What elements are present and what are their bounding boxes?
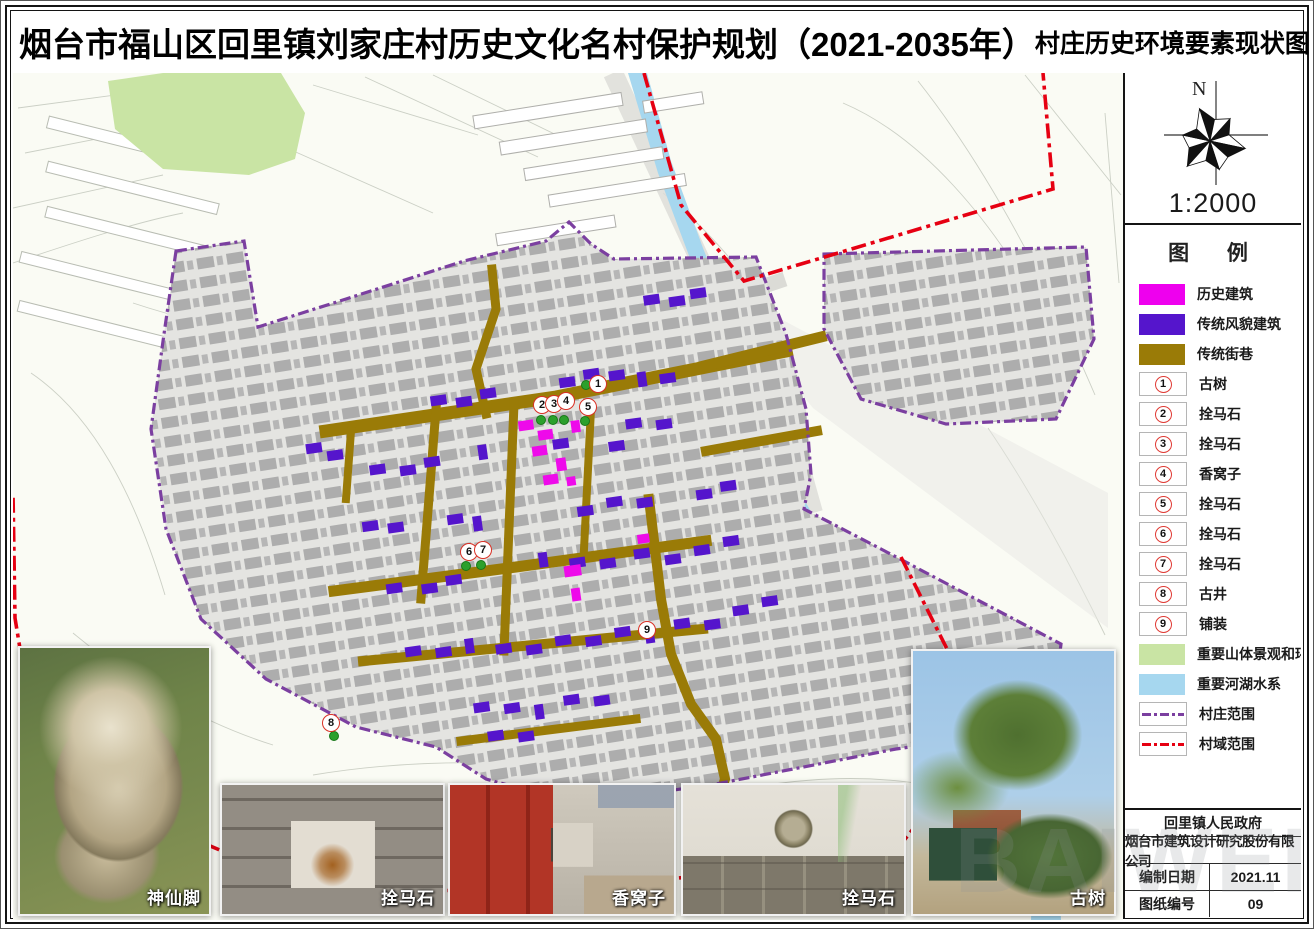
legend-item-traditional-street: 传统街巷 bbox=[1139, 339, 1301, 369]
photo-immortal-foot: 神仙脚 bbox=[18, 646, 211, 916]
village-boundary-sample bbox=[1142, 712, 1184, 716]
heritage-point-dot bbox=[329, 731, 339, 741]
legend-item-domain-boundary: 村域范围 bbox=[1139, 729, 1301, 759]
scale-text: 1:2000 bbox=[1125, 188, 1301, 219]
photo-incense-niche: 香窝子 bbox=[448, 783, 676, 916]
map-marker-9: 9 bbox=[638, 621, 656, 639]
map-marker-7: 7 bbox=[474, 541, 492, 559]
legend-num-7: 7 bbox=[1155, 556, 1172, 573]
heritage-point-dot bbox=[548, 415, 558, 425]
heritage-point-dot bbox=[536, 415, 546, 425]
sheet-number-row: 图纸编号 09 bbox=[1125, 891, 1301, 917]
legend-item-traditional-building: 传统风貌建筑 bbox=[1139, 309, 1301, 339]
legend-num-5: 5 bbox=[1155, 496, 1172, 513]
legend-item-8: 8 古井 bbox=[1139, 579, 1301, 609]
sheet-number-label: 图纸编号 bbox=[1125, 891, 1210, 917]
photo-caption: 拴马石 bbox=[381, 884, 435, 909]
heritage-point-dot bbox=[461, 561, 471, 571]
legend-item-water: 重要河湖水系 bbox=[1139, 669, 1301, 699]
header: 烟台市福山区回里镇刘家庄村历史文化名村保护规划（2021-2035年） 村庄历史… bbox=[13, 11, 1301, 75]
map-marker-5: 5 bbox=[579, 398, 597, 416]
legend-item-village-boundary: 村庄范围 bbox=[1139, 699, 1301, 729]
photo-caption: 拴马石 bbox=[842, 884, 896, 909]
legend-item-mountain: 重要山体景观和环境 bbox=[1139, 639, 1301, 669]
legend-item-historical: 历史建筑 bbox=[1139, 279, 1301, 309]
mountain-swatch bbox=[1139, 644, 1185, 665]
date-label: 编制日期 bbox=[1125, 864, 1210, 890]
photo-ancient-tree: 古树 bbox=[911, 649, 1116, 916]
legend-num-2: 2 bbox=[1155, 406, 1172, 423]
legend-title: 图 例 bbox=[1131, 237, 1301, 267]
legend-item-4: 4 香窝子 bbox=[1139, 459, 1301, 489]
sheet-subtitle: 村庄历史环境要素现状图 bbox=[1035, 24, 1314, 60]
map-marker-4: 4 bbox=[557, 392, 575, 410]
date-value: 2021.11 bbox=[1210, 864, 1301, 890]
north-label: N bbox=[1192, 78, 1206, 100]
heritage-point-dot bbox=[559, 415, 569, 425]
title-block: 回里镇人民政府 烟台市建筑设计研究股份有限公司 编制日期 2021.11 图纸编… bbox=[1125, 808, 1301, 918]
water-swatch bbox=[1139, 674, 1185, 695]
photo-horse-stone-2: 拴马石 bbox=[681, 783, 906, 916]
sheet-number-value: 09 bbox=[1210, 891, 1301, 917]
legend-num-4: 4 bbox=[1155, 466, 1172, 483]
legend-item-1: 1 古树 bbox=[1139, 369, 1301, 399]
historical-swatch bbox=[1139, 284, 1185, 305]
heritage-point-dot bbox=[476, 560, 486, 570]
map-marker-1: 1 bbox=[589, 375, 607, 393]
photo-caption: 古树 bbox=[1070, 884, 1106, 909]
heritage-point-dot bbox=[580, 416, 590, 426]
company-row: 烟台市建筑设计研究股份有限公司 bbox=[1125, 837, 1301, 864]
map-canvas: 123456789 神仙脚 拴马石 香窝子 拴马石 古树 bbox=[13, 73, 1123, 920]
photo-horse-stone-1: 拴马石 bbox=[220, 783, 445, 916]
legend-item-5: 5 拴马石 bbox=[1139, 489, 1301, 519]
map-marker-8: 8 bbox=[322, 714, 340, 732]
legend-num-1: 1 bbox=[1155, 376, 1172, 393]
legend: 图 例 历史建筑 传统风貌建筑 传统街巷 1 古树 2 拴马石 bbox=[1125, 225, 1301, 808]
legend-item-3: 3 拴马石 bbox=[1139, 429, 1301, 459]
photo-caption: 香窝子 bbox=[612, 884, 666, 909]
legend-num-3: 3 bbox=[1155, 436, 1172, 453]
plan-sheet: 烟台市福山区回里镇刘家庄村历史文化名村保护规划（2021-2035年） 村庄历史… bbox=[0, 0, 1314, 929]
traditional-building-swatch bbox=[1139, 314, 1185, 335]
legend-item-9: 9 铺装 bbox=[1139, 609, 1301, 639]
legend-item-7: 7 拴马石 bbox=[1139, 549, 1301, 579]
photo-caption: 神仙脚 bbox=[147, 884, 201, 909]
traditional-street-swatch bbox=[1139, 344, 1185, 365]
legend-item-2: 2 拴马石 bbox=[1139, 399, 1301, 429]
north-arrow-box: N 1:2000 bbox=[1125, 73, 1301, 225]
side-panel: N 1:2000 图 例 历史建筑 传统风貌建筑 传统街巷 1 古树 bbox=[1123, 73, 1301, 918]
domain-boundary-sample bbox=[1142, 742, 1184, 746]
legend-num-9: 9 bbox=[1155, 616, 1172, 633]
date-row: 编制日期 2021.11 bbox=[1125, 864, 1301, 891]
page-title: 烟台市福山区回里镇刘家庄村历史文化名村保护规划（2021-2035年） bbox=[13, 18, 1035, 66]
legend-item-6: 6 拴马石 bbox=[1139, 519, 1301, 549]
legend-num-8: 8 bbox=[1155, 586, 1172, 603]
legend-num-6: 6 bbox=[1155, 526, 1172, 543]
